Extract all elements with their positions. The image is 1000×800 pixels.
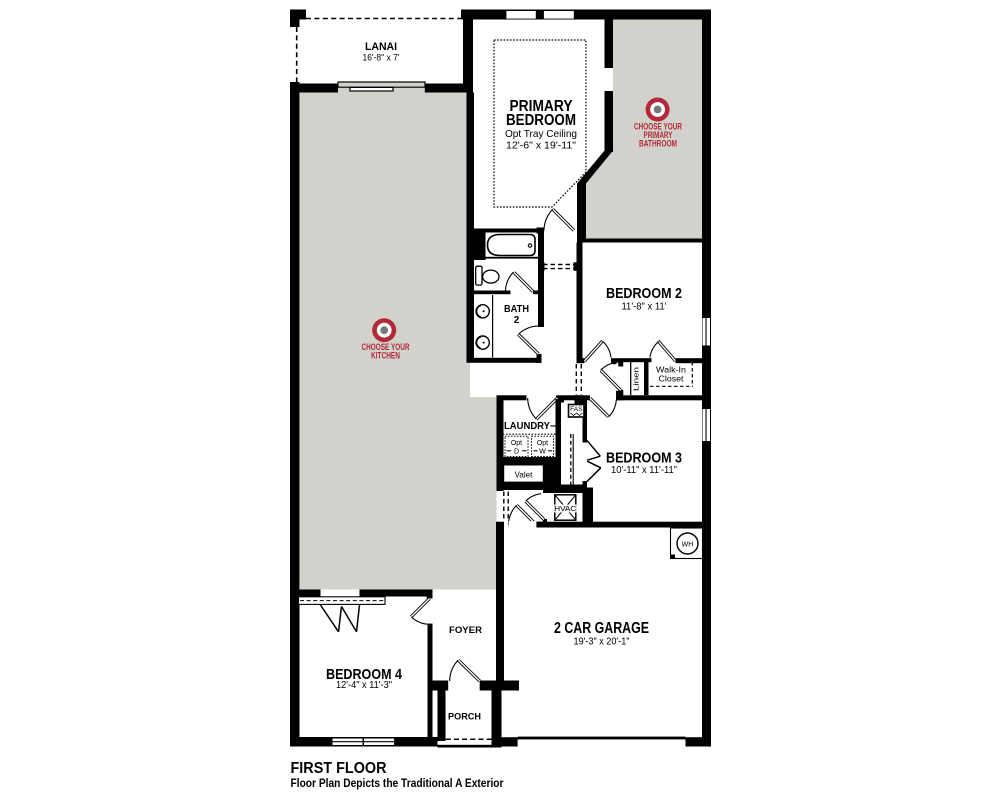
svg-text:FOYER: FOYER (449, 625, 482, 636)
svg-text:KITCHEN: KITCHEN (371, 351, 400, 361)
svg-text:10'-11" x 11'-11": 10'-11" x 11'-11" (611, 464, 677, 476)
svg-text:HVAC: HVAC (554, 504, 577, 513)
svg-text:Opt: Opt (537, 440, 548, 447)
svg-text:FAS: FAS (570, 406, 583, 413)
svg-text:12'-6" x 19'-11": 12'-6" x 19'-11" (506, 140, 576, 152)
svg-text:16'-8" x 7': 16'-8" x 7' (363, 53, 400, 64)
svg-text:Closet: Closet (659, 375, 685, 384)
svg-text:WH: WH (682, 542, 694, 549)
svg-text:BEDROOM: BEDROOM (506, 112, 576, 129)
svg-text:FIRST FLOOR: FIRST FLOOR (291, 760, 387, 777)
svg-text:D: D (514, 449, 519, 456)
svg-text:W: W (539, 449, 546, 456)
svg-text:Valet: Valet (515, 471, 533, 480)
svg-text:11'-8" x 11': 11'-8" x 11' (622, 301, 667, 313)
svg-text:LAUNDRY: LAUNDRY (504, 420, 550, 432)
svg-text:Walk-In: Walk-In (656, 366, 686, 375)
svg-text:BATHROOM: BATHROOM (639, 139, 677, 149)
svg-text:2 CAR GARAGE: 2 CAR GARAGE (554, 620, 649, 637)
svg-text:Opt: Opt (511, 440, 522, 447)
svg-text:BEDROOM 2: BEDROOM 2 (606, 285, 682, 302)
svg-text:Linen: Linen (632, 367, 641, 391)
svg-text:Floor Plan Depicts the Traditi: Floor Plan Depicts the Traditional A Ext… (291, 778, 504, 790)
svg-text:12'-4" x 11'-3": 12'-4" x 11'-3" (336, 679, 392, 691)
svg-text:PORCH: PORCH (448, 712, 481, 723)
svg-text:BATH: BATH (504, 304, 529, 315)
svg-text:2: 2 (514, 315, 520, 326)
svg-text:LANAI: LANAI (365, 41, 397, 53)
svg-text:Opt Tray Ceiling: Opt Tray Ceiling (505, 128, 577, 140)
svg-text:19'-3" x 20'-1": 19'-3" x 20'-1" (574, 636, 630, 648)
